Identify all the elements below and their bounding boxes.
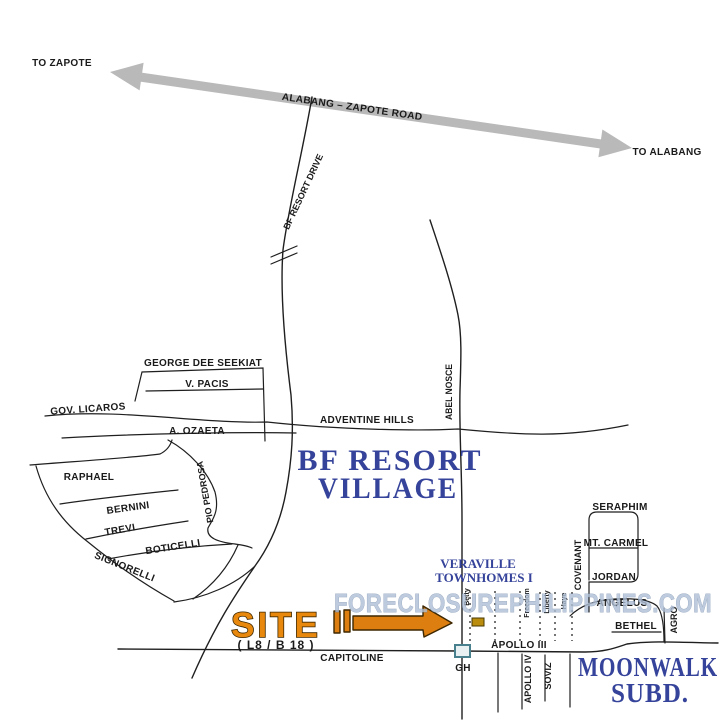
- highway-arrowhead-east-icon: [598, 130, 632, 158]
- label-trevi: TREVI: [104, 522, 136, 538]
- map-canvas: TO ZAPOTE TO ALABANG ALABANG – ZAPOTE RO…: [0, 0, 720, 720]
- label-alabang-zapote-road: ALABANG – ZAPOTE ROAD: [281, 92, 423, 123]
- watermark-text: FORECLOSUREPHILIPPINES.COM: [334, 588, 712, 618]
- label-soviz: SOVIZ: [543, 662, 553, 690]
- area-veraville-line1: VERAVILLE: [440, 556, 516, 571]
- label-a-ozaeta: A. OZAETA: [169, 426, 225, 437]
- label-mt-carmel: MT. CARMEL: [584, 538, 649, 549]
- label-covenant: COVENANT: [573, 539, 583, 590]
- road-raphael-divider: [60, 490, 178, 504]
- site-block-marker: [472, 618, 484, 626]
- label-bethel: BETHEL: [615, 621, 657, 632]
- label-bernini: BERNINI: [106, 500, 150, 517]
- label-boticelli: BOTICELLI: [145, 538, 202, 558]
- label-pio-pedrosa: PIO PEDROSA: [195, 460, 216, 524]
- area-veraville-line2: TOWNHOMES I: [435, 570, 533, 585]
- label-bf-resort-drive: BF RESORT DRIVE: [281, 152, 325, 231]
- gatehouse-box-icon: [455, 645, 470, 657]
- label-gov-licaros: GOV. LICAROS: [50, 401, 126, 417]
- road-trevi-divider: [86, 521, 188, 539]
- label-raphael: RAPHAEL: [64, 472, 114, 483]
- label-george-dee-seekiat: GEORGE DEE SEEKIAT: [144, 358, 262, 369]
- label-to-alabang: TO ALABANG: [632, 147, 701, 158]
- label-gatehouse: GH: [455, 663, 471, 674]
- vicinity-map: TO ZAPOTE TO ALABANG ALABANG – ZAPOTE RO…: [0, 0, 720, 720]
- site-lot-block-label: ( L8 / B 18 ): [237, 638, 314, 652]
- label-jordan: JORDAN: [592, 572, 636, 583]
- area-bf-resort-village-line2: VILLAGE: [318, 472, 458, 505]
- highway-arrowhead-west-icon: [110, 63, 144, 91]
- road-block-top-edge: [30, 440, 172, 465]
- label-seraphim: SERAPHIM: [592, 502, 647, 513]
- label-to-zapote: TO ZAPOTE: [32, 58, 92, 69]
- road-break-stroke-2: [271, 253, 297, 264]
- area-moonwalk-line2: SUBD.: [611, 678, 689, 708]
- label-v-pacis: V. PACIS: [185, 379, 229, 390]
- label-adventine-hills: ADVENTINE HILLS: [320, 415, 414, 426]
- label-apollo-iv: APOLLO IV: [523, 655, 533, 704]
- road-break-icon: [271, 246, 297, 264]
- label-capitoline: CAPITOLINE: [320, 653, 383, 664]
- label-apollo-iii: APOLLO III: [491, 640, 547, 651]
- label-abel-nosce: ABEL NOSCE: [444, 364, 454, 420]
